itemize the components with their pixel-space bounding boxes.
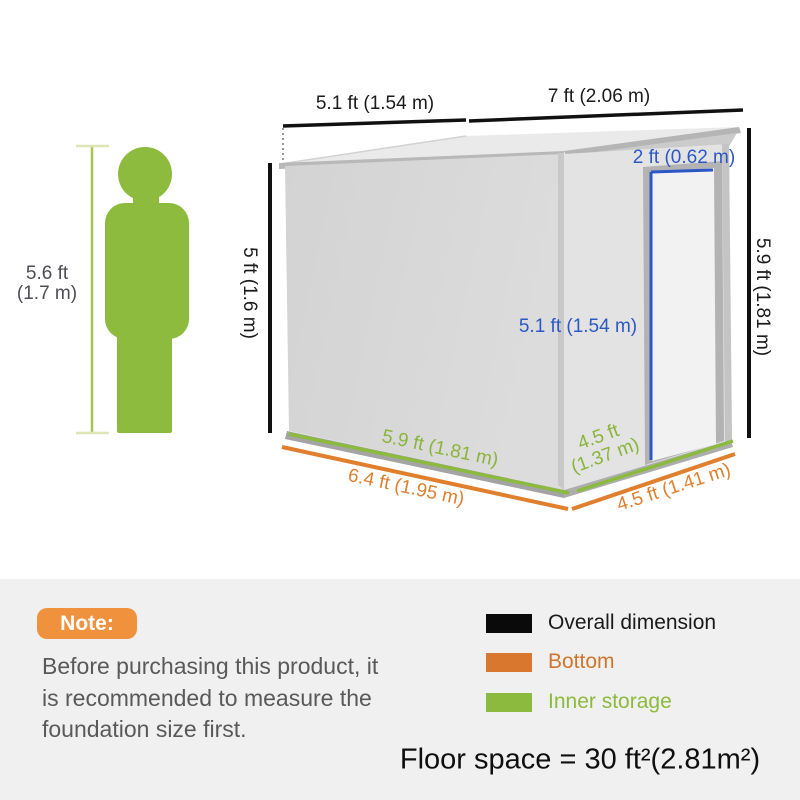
roof-left-dim-line (283, 120, 466, 126)
roof-left-width-label: 5.1 ft (1.54 m) (316, 94, 434, 114)
door-width-label: 2 ft (0.62 m) (633, 148, 735, 168)
right-height-label: 5.9 ft (1.81 m) (752, 238, 772, 356)
person-figure (105, 147, 189, 433)
door-width-accent-line (651, 170, 713, 172)
note-line: is recommended to measure the (42, 683, 378, 715)
legend-label: Bottom (548, 650, 615, 674)
door-panel (650, 168, 716, 461)
inner-storage-swatch (486, 693, 532, 712)
note-text: Before purchasing this product, it is re… (42, 651, 378, 746)
left-height-label: 5 ft (1.6 m) (239, 247, 259, 339)
note-line: Before purchasing this product, it (42, 651, 378, 683)
person-height-label: 5.6 ft (1.7 m) (17, 264, 77, 304)
note-line: foundation size first. (42, 714, 378, 746)
roof-right-width-label: 7 ft (2.06 m) (548, 87, 650, 107)
legend-item-bottom: Bottom (486, 650, 615, 674)
legend-label: Overall dimension (548, 611, 716, 635)
legend-item-overall: Overall dimension (486, 611, 716, 635)
door-height-label: 5.1 ft (1.54 m) (519, 317, 637, 337)
product-dimension-image: 5.1 ft (1.54 m) 7 ft (2.06 m) 5 ft (1.6 … (0, 0, 800, 800)
overall-dimension-swatch (486, 614, 532, 633)
floor-space-text: Floor space = 30 ft²(2.81m²) (400, 744, 760, 777)
note-section: Note: Before purchasing this product, it… (0, 579, 800, 800)
person-head (118, 147, 172, 201)
roof-right-dim-line (469, 110, 743, 121)
legend-label: Inner storage (548, 690, 672, 714)
legend-item-inner-storage: Inner storage (486, 690, 672, 714)
bottom-swatch (486, 653, 532, 672)
note-badge: Note: (37, 608, 137, 639)
person-legs (117, 318, 172, 433)
